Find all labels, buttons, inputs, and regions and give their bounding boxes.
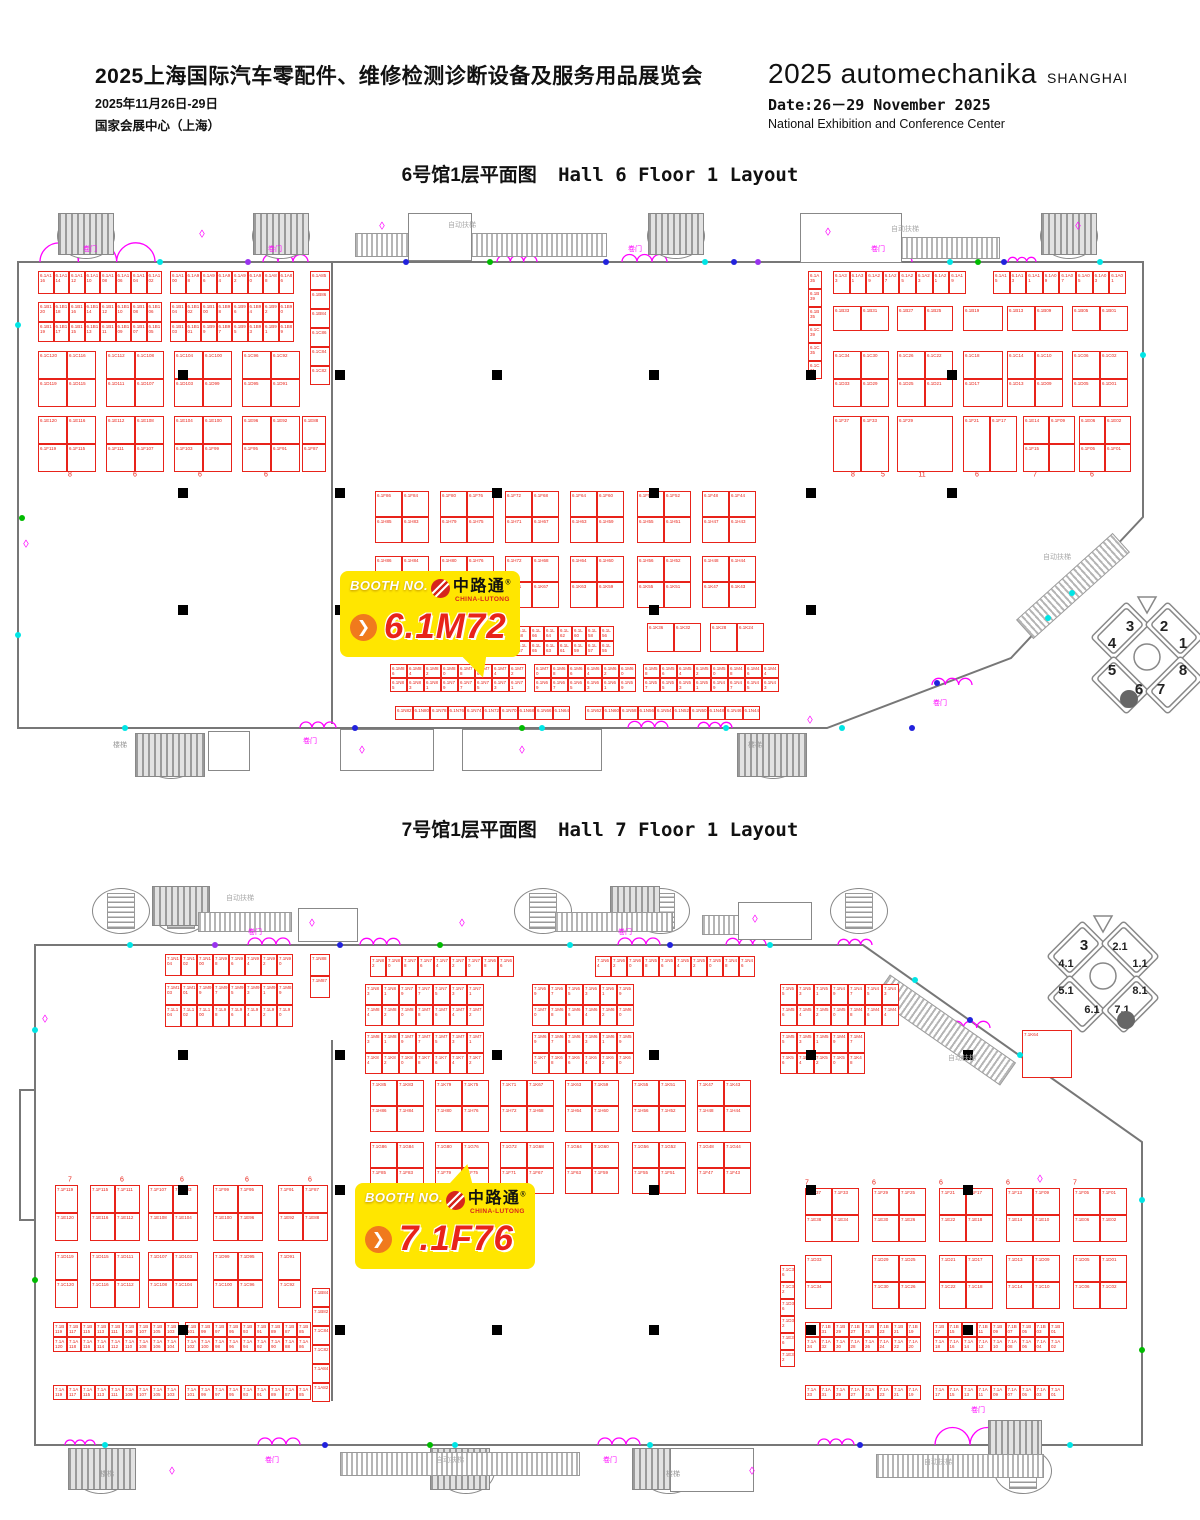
hydrant-icon: ◊ bbox=[309, 919, 314, 930]
booth: 7.1A05 bbox=[1020, 1385, 1035, 1400]
booth: 7.1B07 bbox=[1006, 1322, 1021, 1337]
booth-number: 6.1M72 bbox=[384, 607, 507, 647]
booth: 6.1K67 bbox=[532, 582, 559, 608]
booth: 7.1K83 bbox=[397, 1080, 424, 1106]
booth: 7.1N72 bbox=[450, 956, 466, 977]
booth: 6.1A07 bbox=[1059, 271, 1076, 294]
service-room bbox=[738, 902, 812, 940]
plan-annotation: 卷门 bbox=[628, 244, 642, 254]
booth: 7.1G48 bbox=[697, 1142, 724, 1168]
wall-marker-dot bbox=[647, 1442, 653, 1448]
booth: 7.1A11 bbox=[977, 1385, 992, 1400]
booth: 7.1A01 bbox=[1049, 1385, 1064, 1400]
booth: 7.1A19 bbox=[907, 1385, 922, 1400]
wall-marker-dot bbox=[487, 259, 493, 265]
booth: 7.1A118 bbox=[67, 1337, 81, 1352]
booth: 6.1H75 bbox=[467, 517, 494, 543]
booth: 7.1M67 bbox=[549, 1032, 566, 1053]
booth: 7.1D91 bbox=[278, 1252, 301, 1280]
booth: 7.1N73 bbox=[450, 984, 467, 1005]
booth: 6.1K32 bbox=[674, 623, 701, 652]
booth: 7.1E06 bbox=[1073, 1215, 1100, 1242]
booth: 6.1B106 bbox=[147, 302, 163, 322]
escalator-icon bbox=[355, 233, 607, 257]
booth: 7.1D95 bbox=[238, 1252, 263, 1280]
booth: 7.1D103 bbox=[173, 1252, 198, 1280]
booth: 6.1F09 bbox=[1049, 416, 1075, 444]
booth: 7.1B117 bbox=[67, 1322, 81, 1337]
booth: 6.1K59 bbox=[597, 582, 624, 608]
booth: 7.1B99 bbox=[199, 1322, 213, 1337]
booth: 7.1G72 bbox=[500, 1142, 527, 1168]
brand-name-cn: 中路通 bbox=[468, 1190, 521, 1207]
booth: 6.1A96 bbox=[201, 271, 217, 294]
booth: 6.1N43 bbox=[762, 678, 779, 692]
booth: 7.1A22 bbox=[892, 1337, 907, 1352]
booth: 6.1N52 bbox=[673, 706, 691, 720]
column-pillar bbox=[178, 605, 188, 615]
booth: 6.1M62 bbox=[602, 664, 619, 678]
booth: 6.1A94 bbox=[217, 271, 233, 294]
booth: 7.1N52 bbox=[691, 956, 707, 977]
booth: 7.1N58 bbox=[643, 956, 659, 977]
booth: 6.1E120 bbox=[38, 416, 67, 444]
booth: 7.1M80 bbox=[399, 1005, 416, 1026]
booth: 7.1F115 bbox=[90, 1185, 115, 1213]
booth: 7.1C84 bbox=[312, 1326, 330, 1345]
booth: 7.1N88 bbox=[310, 954, 330, 976]
booth: 6.1L55 bbox=[600, 641, 614, 656]
hydrant-icon: ◊ bbox=[807, 716, 812, 727]
booth: 6.1A110 bbox=[85, 271, 101, 294]
booth: 6.1D29 bbox=[861, 379, 889, 407]
booth: 7.1A92 bbox=[255, 1337, 269, 1352]
booth: 7.1B11 bbox=[977, 1322, 992, 1337]
booth: 7.1E108 bbox=[148, 1213, 173, 1241]
hydrant-icon: ◊ bbox=[23, 540, 28, 551]
booth: 6.1A27 bbox=[883, 271, 900, 294]
booth: 6.1H47 bbox=[702, 517, 729, 543]
booth: 7.1B31 bbox=[820, 1322, 835, 1337]
booth: 6.1C100 bbox=[203, 351, 232, 379]
wall-marker-dot bbox=[603, 259, 609, 265]
booth: 6.1K28 bbox=[710, 623, 737, 652]
booth: 7.1B107 bbox=[137, 1322, 151, 1337]
booth: 7.1M71 bbox=[467, 1032, 484, 1053]
booth: 6.1B25 bbox=[925, 306, 953, 331]
plan-annotation: 11 bbox=[918, 472, 925, 479]
booth: 7.1N56 bbox=[659, 956, 675, 977]
column-pillar bbox=[335, 488, 345, 498]
booth: 7.1F51 bbox=[659, 1168, 686, 1194]
booth: 6.1B97 bbox=[217, 322, 233, 342]
wall-marker-dot bbox=[567, 942, 573, 948]
booth: 7.1D32 bbox=[780, 1316, 795, 1333]
booth: 7.1N78 bbox=[402, 956, 418, 977]
exhibition-date-en: Date:26－29 November 2025 bbox=[768, 94, 1188, 115]
booth: 7.1L102 bbox=[181, 1005, 197, 1027]
wall-marker-dot bbox=[337, 942, 343, 948]
column-pillar bbox=[178, 1185, 188, 1195]
china-lutong-logo: 中路通® CHINA-LUTONG bbox=[431, 578, 512, 603]
booth: 6.1C02 bbox=[1100, 351, 1128, 379]
booth: 7.1D25 bbox=[899, 1255, 926, 1282]
booth: 6.1C116 bbox=[67, 351, 96, 379]
booth: 6.1A31 bbox=[850, 271, 867, 294]
booth: 7.1N102 bbox=[181, 954, 197, 976]
booth: 6.1F107 bbox=[135, 444, 164, 472]
booth: 7.1F111 bbox=[115, 1185, 140, 1213]
booth: 6.1M86 bbox=[390, 664, 407, 678]
booth: 6.1A13 bbox=[1010, 271, 1027, 294]
booth: 6.1N71 bbox=[509, 678, 526, 692]
booth: 7.1B105 bbox=[151, 1322, 165, 1337]
booth: 6.1F60 bbox=[597, 491, 624, 517]
booth: 6.1B99 bbox=[201, 322, 217, 342]
booth: 7.1K60 bbox=[617, 1053, 634, 1074]
booth: 7.1B119 bbox=[53, 1322, 67, 1337]
booth: 6.1A104 bbox=[131, 271, 147, 294]
booth: 7.1A115 bbox=[81, 1385, 95, 1400]
booth: 7.1D01 bbox=[1100, 1255, 1127, 1282]
booth: 6.1L58 bbox=[586, 626, 600, 641]
plan-annotation: 7 bbox=[1033, 472, 1037, 479]
booth: 7.1F47 bbox=[697, 1168, 724, 1194]
booth: 6.1A116 bbox=[38, 271, 54, 294]
booth: 7.1A102 bbox=[185, 1337, 199, 1352]
booth: 7.1M47 bbox=[848, 1032, 865, 1053]
booth: 6.1M44 bbox=[762, 664, 779, 678]
booth: 7.1D99 bbox=[213, 1252, 238, 1280]
wall-marker-dot bbox=[1139, 1347, 1145, 1353]
booth: 6.1L56 bbox=[600, 626, 614, 641]
automechanika-logo: 2025 automechanika bbox=[768, 58, 1037, 90]
booth: 7.1E10 bbox=[1033, 1215, 1060, 1242]
booth: 7.1E32 bbox=[780, 1350, 795, 1367]
booth: 7.1N60 bbox=[627, 956, 643, 977]
staircase-icon bbox=[1041, 213, 1097, 255]
booth: 7.1A03 bbox=[1035, 1385, 1050, 1400]
booth: 7.1E34 bbox=[832, 1215, 859, 1242]
booth: 7.1A32 bbox=[820, 1337, 835, 1352]
booth: 6.1C82 bbox=[310, 366, 330, 385]
booth: 6.1L57 bbox=[586, 641, 600, 656]
escalator-icon bbox=[890, 237, 1000, 259]
booth: 6.1B31 bbox=[861, 306, 889, 331]
booth: 6.1D13 bbox=[1007, 379, 1035, 407]
booth: 6.1A03 bbox=[1093, 271, 1110, 294]
booth: 6.1N66 bbox=[535, 706, 553, 720]
wall-marker-dot bbox=[1067, 1442, 1073, 1448]
booth: 6.1B05 bbox=[1072, 306, 1100, 331]
booth: 7.1N46 bbox=[739, 956, 755, 977]
booth: 6.1N76 bbox=[448, 706, 466, 720]
booth: 7.1F63 bbox=[565, 1168, 592, 1194]
booth: 6.1N61 bbox=[602, 678, 619, 692]
booth: 7.1A23 bbox=[878, 1385, 893, 1400]
booth: 7.1A88 bbox=[283, 1337, 297, 1352]
booth: 6.1B27 bbox=[897, 306, 925, 331]
svg-text:2.1: 2.1 bbox=[1112, 941, 1127, 953]
svg-text:7: 7 bbox=[1157, 681, 1165, 698]
booth: 6.1E92 bbox=[271, 416, 300, 444]
booth: 6.1D01 bbox=[1100, 379, 1128, 407]
wall-marker-dot bbox=[857, 1442, 863, 1448]
plan-annotation: 自动扶梯 bbox=[436, 1455, 464, 1465]
booth: 6.1N63 bbox=[585, 678, 602, 692]
booth: 7.1F95 bbox=[238, 1185, 263, 1213]
booth: 6.1H56 bbox=[637, 556, 664, 582]
booth: 6.1B104 bbox=[170, 302, 186, 322]
booth: 7.1B93 bbox=[241, 1322, 255, 1337]
booth: 6.1N72 bbox=[483, 706, 501, 720]
column-pillar bbox=[806, 370, 816, 380]
booth: 6.1D115 bbox=[67, 379, 96, 407]
wall-marker-dot bbox=[1017, 1052, 1023, 1058]
booth: 7.1N54 bbox=[675, 956, 691, 977]
booth: 7.1M55 bbox=[780, 1032, 797, 1053]
column-pillar bbox=[178, 488, 188, 498]
booth: 7.1M66 bbox=[566, 1005, 583, 1026]
booth: 6.1F111 bbox=[106, 444, 135, 472]
booth: 7.1N45 bbox=[865, 984, 882, 1005]
plan-annotation: 6 bbox=[120, 1177, 124, 1184]
booth: 6.1C14 bbox=[1007, 351, 1035, 379]
booth: 7.1E100 bbox=[213, 1213, 238, 1241]
booth: 6.1A15 bbox=[993, 271, 1010, 294]
booth: 6.1H51 bbox=[664, 517, 691, 543]
booth: 7.1A02 bbox=[1049, 1337, 1064, 1352]
svg-text:6.1: 6.1 bbox=[1084, 1004, 1099, 1016]
stairs-hatch bbox=[529, 893, 557, 929]
booth: 7.1A104 bbox=[165, 1337, 179, 1352]
booth: 6.1A106 bbox=[116, 271, 132, 294]
booth: 7.1A105 bbox=[151, 1385, 165, 1400]
booth: 6.1C18 bbox=[963, 351, 1003, 379]
booth: 7.1B21 bbox=[892, 1322, 907, 1337]
booth: 7.1F01 bbox=[1100, 1188, 1127, 1215]
svg-text:4: 4 bbox=[1108, 635, 1117, 652]
booth: 7.1M50 bbox=[831, 1005, 848, 1026]
column-pillar bbox=[492, 1325, 502, 1335]
booth: 6.1B09 bbox=[1035, 306, 1063, 331]
booth: 7.1C32 bbox=[780, 1282, 795, 1299]
service-room bbox=[462, 729, 602, 771]
booth: 7.1K50 bbox=[831, 1053, 848, 1074]
plan-annotation: 6 bbox=[264, 472, 268, 479]
booth: 7.1A109 bbox=[123, 1385, 137, 1400]
booth: 6.1K51 bbox=[664, 582, 691, 608]
booth: 7.1H56 bbox=[632, 1106, 659, 1132]
booth: 7.1A15 bbox=[948, 1385, 963, 1400]
booth: 7.1M75 bbox=[433, 1032, 450, 1053]
booth: 7.1K56 bbox=[780, 1053, 797, 1074]
booth: 7.1L100 bbox=[197, 1005, 213, 1027]
booth: 7.1N49 bbox=[831, 984, 848, 1005]
booth: 7.1K59 bbox=[592, 1080, 619, 1106]
column-pillar bbox=[806, 1325, 816, 1335]
booth: 7.1B05 bbox=[1020, 1322, 1035, 1337]
registered-mark: ® bbox=[505, 580, 512, 587]
booth: 7.1M89 bbox=[277, 983, 293, 1005]
booth: 7.1M87 bbox=[310, 976, 330, 998]
booth: 6.1F05 bbox=[1079, 444, 1105, 472]
wall-marker-dot bbox=[403, 259, 409, 265]
booth: 7.1M70 bbox=[532, 1005, 549, 1026]
column-pillar bbox=[649, 1185, 659, 1195]
wall-marker-dot bbox=[1045, 615, 1051, 621]
booth: 7.1B109 bbox=[123, 1322, 137, 1337]
booth: 7.1N65 bbox=[566, 984, 583, 1005]
booth: 6.1E116 bbox=[67, 416, 96, 444]
booth: 6.1C39 bbox=[808, 325, 822, 343]
booth: 7.1E88 bbox=[303, 1213, 328, 1241]
plan-annotation: 卷门 bbox=[603, 1455, 617, 1465]
booth: 6.1D111 bbox=[106, 379, 135, 407]
wall-marker-dot bbox=[19, 515, 25, 521]
china-lutong-logo-icon bbox=[431, 579, 450, 598]
booth: 6.1F80 bbox=[440, 491, 467, 517]
wall-marker-dot bbox=[437, 942, 443, 948]
booth: 6.1N59 bbox=[619, 678, 636, 692]
plan-annotation: 6 bbox=[975, 472, 979, 479]
booth: 7.1C02 bbox=[1100, 1282, 1127, 1309]
booth: 6.1C35 bbox=[808, 343, 822, 361]
booth: 6.1N44 bbox=[743, 706, 761, 720]
booth: 6.1A01 bbox=[1109, 271, 1126, 294]
booth: 6.1M56 bbox=[660, 664, 677, 678]
booth: 7.1A12 bbox=[977, 1337, 992, 1352]
booth: 7.1F09 bbox=[1033, 1188, 1060, 1215]
booth: 7.1K79 bbox=[435, 1080, 462, 1106]
wall-marker-dot bbox=[15, 322, 21, 328]
wall-marker-dot bbox=[947, 259, 953, 265]
column-pillar bbox=[963, 1325, 973, 1335]
wall-marker-dot bbox=[967, 1017, 973, 1023]
booth: 6.1M72 bbox=[509, 664, 526, 678]
booth: 7.1C92 bbox=[278, 1280, 301, 1308]
booth: 7.1N55 bbox=[780, 984, 797, 1005]
booth: 6.1N78 bbox=[430, 706, 448, 720]
booth: 7.1M101 bbox=[181, 983, 197, 1005]
svg-text:5: 5 bbox=[1108, 662, 1116, 679]
booth: 6.1E14 bbox=[1023, 416, 1049, 444]
booth: 6.1B100 bbox=[201, 302, 217, 322]
booth: 7.1K55 bbox=[632, 1080, 659, 1106]
booth: 6.1L60 bbox=[572, 626, 586, 641]
booth: 6.1N60 bbox=[603, 706, 621, 720]
booth: 7.1A86 bbox=[297, 1337, 311, 1352]
booth-number: 7.1F76 bbox=[399, 1219, 514, 1259]
booth: 7.1K72 bbox=[467, 1053, 484, 1074]
booth: 6.1F01 bbox=[1105, 444, 1131, 472]
booth: 6.1N53 bbox=[677, 678, 694, 692]
wall-marker-dot bbox=[15, 632, 21, 638]
booth: 6.1H64 bbox=[570, 556, 597, 582]
booth: 6.1D09 bbox=[1035, 379, 1063, 407]
booth: 7.1C06 bbox=[1073, 1282, 1100, 1309]
booth: 6.1D25 bbox=[897, 379, 925, 407]
column-pillar bbox=[178, 370, 188, 380]
booth: 6.1A100 bbox=[170, 271, 186, 294]
booth: 6.1N79 bbox=[441, 678, 458, 692]
booth: 7.1M81 bbox=[382, 1032, 399, 1053]
booth: 6.1M82 bbox=[424, 664, 441, 678]
booth: 6.1A35 bbox=[808, 271, 822, 289]
booth: 7.1M51 bbox=[814, 1032, 831, 1053]
booth: 7.1N71 bbox=[467, 984, 484, 1005]
booth: 7.1K47 bbox=[697, 1080, 724, 1106]
booth: 7.1D13 bbox=[1006, 1255, 1033, 1282]
booth: 7.1M69 bbox=[532, 1032, 549, 1053]
booth: 6.1N48 bbox=[708, 706, 726, 720]
booth: 7.1N67 bbox=[549, 984, 566, 1005]
booth: 7.1N83 bbox=[365, 984, 382, 1005]
booth: 7.1M54 bbox=[797, 1005, 814, 1026]
booth: 7.1A89 bbox=[269, 1385, 283, 1400]
booth: 6.1A11 bbox=[1026, 271, 1043, 294]
booth: 7.1A13 bbox=[962, 1385, 977, 1400]
booth: 6.1B90 bbox=[279, 302, 295, 322]
booth: 6.1K24 bbox=[737, 623, 764, 652]
booth: 6.1E06 bbox=[1079, 416, 1105, 444]
booth: 7.1E26 bbox=[899, 1215, 926, 1242]
booth: 7.1D17 bbox=[966, 1255, 993, 1282]
booth: 7.1N51 bbox=[814, 984, 831, 1005]
arrow-icon: ❯ bbox=[365, 1226, 392, 1253]
booth: 7.1A112 bbox=[109, 1337, 123, 1352]
booth: 6.1C108 bbox=[135, 351, 164, 379]
escalator-icon bbox=[876, 1454, 1044, 1478]
booth: 7.1M91 bbox=[261, 983, 277, 1005]
booth: 7.1H76 bbox=[462, 1106, 489, 1132]
svg-text:4.1: 4.1 bbox=[1058, 958, 1073, 970]
hall6-title-cn: 6号馆1层平面图 bbox=[402, 165, 537, 186]
booth: 7.1K43 bbox=[724, 1080, 751, 1106]
plan-annotation: 6 bbox=[939, 1180, 943, 1187]
booth: 6.1M50 bbox=[711, 664, 728, 678]
booth: 7.1D111 bbox=[115, 1252, 140, 1280]
booth: 7.1A10 bbox=[991, 1337, 1006, 1352]
booth: 7.1A17 bbox=[933, 1385, 948, 1400]
booth: 7.1G52 bbox=[659, 1142, 686, 1168]
service-room bbox=[670, 1448, 754, 1492]
booth: 7.1E112 bbox=[115, 1213, 140, 1241]
venue-minimap: 32415867 bbox=[1082, 591, 1200, 717]
china-lutong-logo-icon bbox=[446, 1191, 465, 1210]
plan-annotation: 卷门 bbox=[971, 1405, 985, 1415]
column-pillar bbox=[335, 1185, 345, 1195]
booth: 6.1N54 bbox=[655, 706, 673, 720]
booth: 7.1F13 bbox=[1006, 1188, 1033, 1215]
booth: 7.1M52 bbox=[814, 1005, 831, 1026]
plan-annotation: 7 bbox=[68, 1177, 72, 1184]
booth: 6.1F103 bbox=[174, 444, 203, 472]
booth: 7.1A116 bbox=[81, 1337, 95, 1352]
booth: 6.1B118 bbox=[54, 302, 70, 322]
booth: 7.1K85 bbox=[370, 1080, 397, 1106]
column-pillar bbox=[649, 370, 659, 380]
plan-annotation: 卷门 bbox=[268, 244, 282, 254]
booth: 7.1M49 bbox=[831, 1032, 848, 1053]
booth: 7.1N43 bbox=[882, 984, 899, 1005]
booth: 7.1B01 bbox=[1049, 1322, 1064, 1337]
booth: 7.1B87 bbox=[283, 1322, 297, 1337]
booth: 6.1C112 bbox=[106, 351, 135, 379]
booth: 6.1B107 bbox=[131, 322, 147, 342]
column-pillar bbox=[806, 488, 816, 498]
wall-marker-dot bbox=[912, 977, 918, 983]
